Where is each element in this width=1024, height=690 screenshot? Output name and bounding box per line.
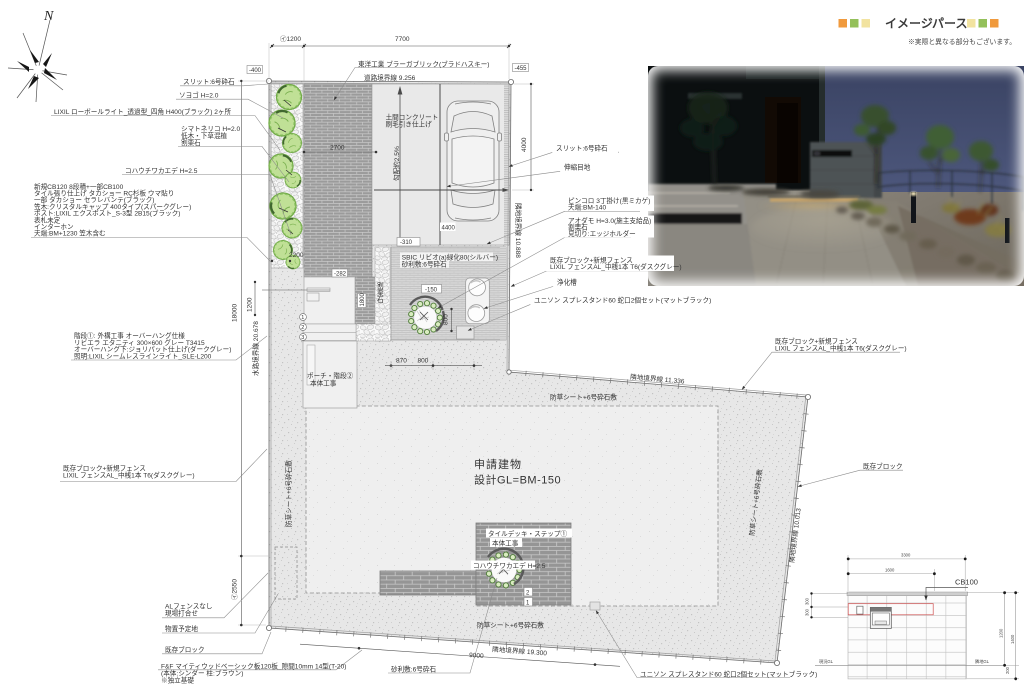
svg-text:防草シート+6号砕石敷: 防草シート+6号砕石敷: [284, 460, 293, 527]
svg-text:割栗石: 割栗石: [181, 138, 201, 147]
svg-text:笠木:クリスタルキャップ 400タイプ(スパークグレー): 笠木:クリスタルキャップ 400タイプ(スパークグレー): [34, 202, 191, 211]
svg-text:現場打合せ: 現場打合せ: [165, 609, 198, 618]
svg-text:1600: 1600: [885, 567, 895, 572]
svg-text:アオダモ H=3.0(施主支給品): アオダモ H=3.0(施主支給品): [568, 216, 651, 225]
svg-text:7700: 7700: [395, 36, 410, 43]
svg-text:2: 2: [301, 325, 304, 331]
svg-text:隣地境界線 10.888: 隣地境界線 10.888: [514, 203, 523, 258]
svg-text:オーバーハング下:ジョリパット仕上げ(ダークグレー): オーバーハング下:ジョリパット仕上げ(ダークグレー): [74, 345, 231, 354]
svg-text:870: 870: [396, 358, 407, 365]
svg-text:300: 300: [805, 597, 810, 605]
svg-text:F&F マイティウッドベーシック板120板_隙間10mm 1: F&F マイティウッドベーシック板120板_隙間10mm 14型(T-20): [161, 661, 346, 670]
svg-text:割: 割: [377, 281, 384, 290]
svg-text:ALフェンスなし: ALフェンスなし: [165, 603, 213, 611]
svg-text:新規CB120 8段積+一部CB100: 新規CB120 8段積+一部CB100: [34, 182, 124, 191]
svg-text:㋑1200: ㋑1200: [280, 35, 301, 43]
svg-text:コハウチワカエデ H=2.5: コハウチワカエデ H=2.5: [473, 561, 546, 570]
svg-text:9000: 9000: [469, 652, 484, 660]
svg-text:既存ブロック: 既存ブロック: [863, 462, 903, 471]
svg-text:既存ブロック+新規フェンス: 既存ブロック+新規フェンス: [775, 337, 858, 346]
svg-text:既存ブロック+新規フェンス: 既存ブロック+新規フェンス: [63, 463, 146, 472]
svg-text:本体工事: 本体工事: [492, 539, 519, 548]
svg-text:4400: 4400: [442, 226, 456, 232]
svg-text:3300: 3300: [901, 553, 911, 558]
svg-text:LIXIL フェンスAL_中桟1本 T6(ダスクグレー): LIXIL フェンスAL_中桟1本 T6(ダスクグレー): [775, 344, 907, 353]
svg-text:-150: -150: [425, 288, 438, 294]
svg-text:300: 300: [805, 608, 810, 616]
svg-text:1: 1: [301, 315, 304, 321]
svg-text:コハウチワカエデ H=2.5: コハウチワカエデ H=2.5: [125, 166, 198, 175]
svg-text:タイルデッキ・ステップ①: タイルデッキ・ステップ①: [488, 529, 568, 538]
svg-text:栗: 栗: [377, 289, 384, 297]
svg-text:LIXIL フェンスAL_中桟1本 T6(ダスクグレー): LIXIL フェンスAL_中桟1本 T6(ダスクグレー): [550, 262, 682, 271]
svg-text:一部 タカショー セラレバンテ(ブラック): 一部 タカショー セラレバンテ(ブラック): [34, 195, 154, 204]
svg-text:天端:BM-140: 天端:BM-140: [568, 203, 606, 212]
svg-text:見切り:エッジホルダー: 見切り:エッジホルダー: [568, 229, 636, 238]
svg-text:物置予定地: 物置予定地: [165, 624, 198, 633]
svg-text:表札未定: 表札未定: [34, 215, 61, 224]
svg-text:-400: -400: [249, 68, 262, 74]
svg-text:既存ブロック: 既存ブロック: [165, 645, 205, 654]
svg-text:刷毛引き仕上げ: 刷毛引き仕上げ: [386, 119, 433, 128]
svg-text:3: 3: [301, 335, 304, 341]
svg-text:800: 800: [443, 314, 450, 325]
svg-text:ポーチ・階段②: ポーチ・階段②: [307, 371, 354, 380]
svg-text:200: 200: [1005, 666, 1010, 674]
svg-text:スリット:6号砕石: スリット:6号砕石: [556, 144, 608, 153]
svg-text:1800: 1800: [360, 292, 366, 306]
svg-text:照明:LIXIL シームレスラインライト_SLE-L200: 照明:LIXIL シームレスラインライト_SLE-L200: [74, 353, 212, 361]
svg-text:2200: 2200: [289, 252, 304, 259]
svg-text:リビエラ エタニティ 300×600 グレー T3415: リビエラ エタニティ 300×600 グレー T3415: [74, 338, 205, 347]
svg-text:1200: 1200: [247, 297, 254, 312]
svg-text:防草シート+6号砕石敷: 防草シート+6号砕石敷: [477, 621, 544, 630]
svg-text:-282: -282: [334, 272, 347, 278]
svg-text:-455: -455: [515, 66, 528, 72]
svg-text:SBIC リビオ(a)緑化80(シルバー): SBIC リビオ(a)緑化80(シルバー): [402, 253, 498, 262]
svg-text:タイル張り仕上げ タカショー RC杉板 ウマ貼り: タイル張り仕上げ タカショー RC杉板 ウマ貼り: [34, 189, 174, 198]
svg-text:既存ブロック+新規フェンス: 既存ブロック+新規フェンス: [550, 255, 633, 264]
svg-text:㋑2550: ㋑2550: [231, 579, 239, 600]
svg-text:イメージパース: イメージパース: [885, 17, 967, 31]
svg-text:天端:BM+1230 笠木含む: 天端:BM+1230 笠木含む: [34, 229, 106, 238]
svg-text:防草シート+6号砕石敷: 防草シート+6号砕石敷: [550, 393, 617, 402]
svg-text:N: N: [43, 9, 54, 24]
svg-text:4000: 4000: [521, 137, 528, 152]
svg-text:LIXIL ローボールライト_透過型_四角 H400(ブラッ: LIXIL ローボールライト_透過型_四角 H400(ブラック) 2ヶ所: [54, 107, 231, 116]
svg-text:設計GL=BM-150: 設計GL=BM-150: [474, 473, 561, 487]
svg-text:(本体:シンダー 柱:ブラウン): (本体:シンダー 柱:ブラウン): [161, 668, 243, 677]
svg-text:ポスト:LIXIL エクスポスト_S-3型 2B15(ブラッ: ポスト:LIXIL エクスポスト_S-3型 2B15(ブラック): [34, 209, 180, 218]
svg-text:シマトネリコ H=2.0: シマトネリコ H=2.0: [181, 125, 241, 133]
svg-text:伸縮目地: 伸縮目地: [564, 163, 591, 172]
svg-text:18000: 18000: [232, 304, 239, 322]
svg-text:砂利敷:6号砕石: 砂利敷:6号砕石: [402, 260, 447, 269]
svg-text:スリット:6号砕石: スリット:6号砕石: [183, 77, 235, 86]
svg-text:インターホン: インターホン: [34, 222, 74, 231]
svg-text:ピンコロ 3丁掛け(黒ミカゲ): ピンコロ 3丁掛け(黒ミカゲ): [568, 196, 650, 205]
svg-text:800: 800: [418, 358, 429, 365]
svg-text:-310: -310: [400, 240, 413, 246]
svg-text:東洋工業 ブラーガブリック(ブラドハスキー): 東洋工業 ブラーガブリック(ブラドハスキー): [358, 59, 490, 68]
svg-text:CB100: CB100: [955, 578, 978, 587]
svg-text:ユニソン スプレスタンド60 蛇口2個セット(マットブラック: ユニソン スプレスタンド60 蛇口2個セット(マットブラック): [534, 296, 711, 305]
svg-text:1400: 1400: [1010, 634, 1015, 644]
svg-text:1200: 1200: [999, 628, 1004, 638]
svg-text:石: 石: [377, 296, 384, 304]
svg-text:砂利敷:6号砕石: 砂利敷:6号砕石: [391, 665, 436, 674]
svg-text:※独立基礎: ※独立基礎: [161, 675, 194, 684]
svg-text:勾配約2.5%: 勾配約2.5%: [392, 146, 401, 181]
svg-text:ユニソン スプレスタンド60 蛇口2個セット(マットブラック: ユニソン スプレスタンド60 蛇口2個セット(マットブラック): [640, 669, 817, 678]
svg-text:現況GL: 現況GL: [819, 658, 834, 665]
svg-text:ソヨゴ H=2.0: ソヨゴ H=2.0: [179, 91, 219, 100]
svg-text:2700: 2700: [330, 145, 345, 152]
svg-text:LIXIL フェンスAL_中桟1本 T6(ダスクグレー): LIXIL フェンスAL_中桟1本 T6(ダスクグレー): [63, 470, 195, 479]
svg-text:水路境界線 20.678: 水路境界線 20.678: [251, 321, 260, 376]
svg-text:低木・下草混植: 低木・下草混植: [181, 131, 228, 140]
svg-text:申請建物: 申請建物: [474, 457, 522, 471]
svg-text:階段①: 外構工事 オーバーハング仕様: 階段①: 外構工事 オーバーハング仕様: [74, 331, 185, 340]
svg-text:浄化槽: 浄化槽: [557, 278, 577, 287]
svg-text:本体工事: 本体工事: [310, 379, 337, 388]
svg-text:土間コンクリート: 土間コンクリート: [386, 112, 439, 121]
svg-text:隣地GL: 隣地GL: [975, 658, 990, 665]
svg-text:道路境界線 9.256: 道路境界線 9.256: [364, 73, 416, 82]
svg-text:※実際と異なる部分もございます。: ※実際と異なる部分もございます。: [908, 37, 1016, 46]
